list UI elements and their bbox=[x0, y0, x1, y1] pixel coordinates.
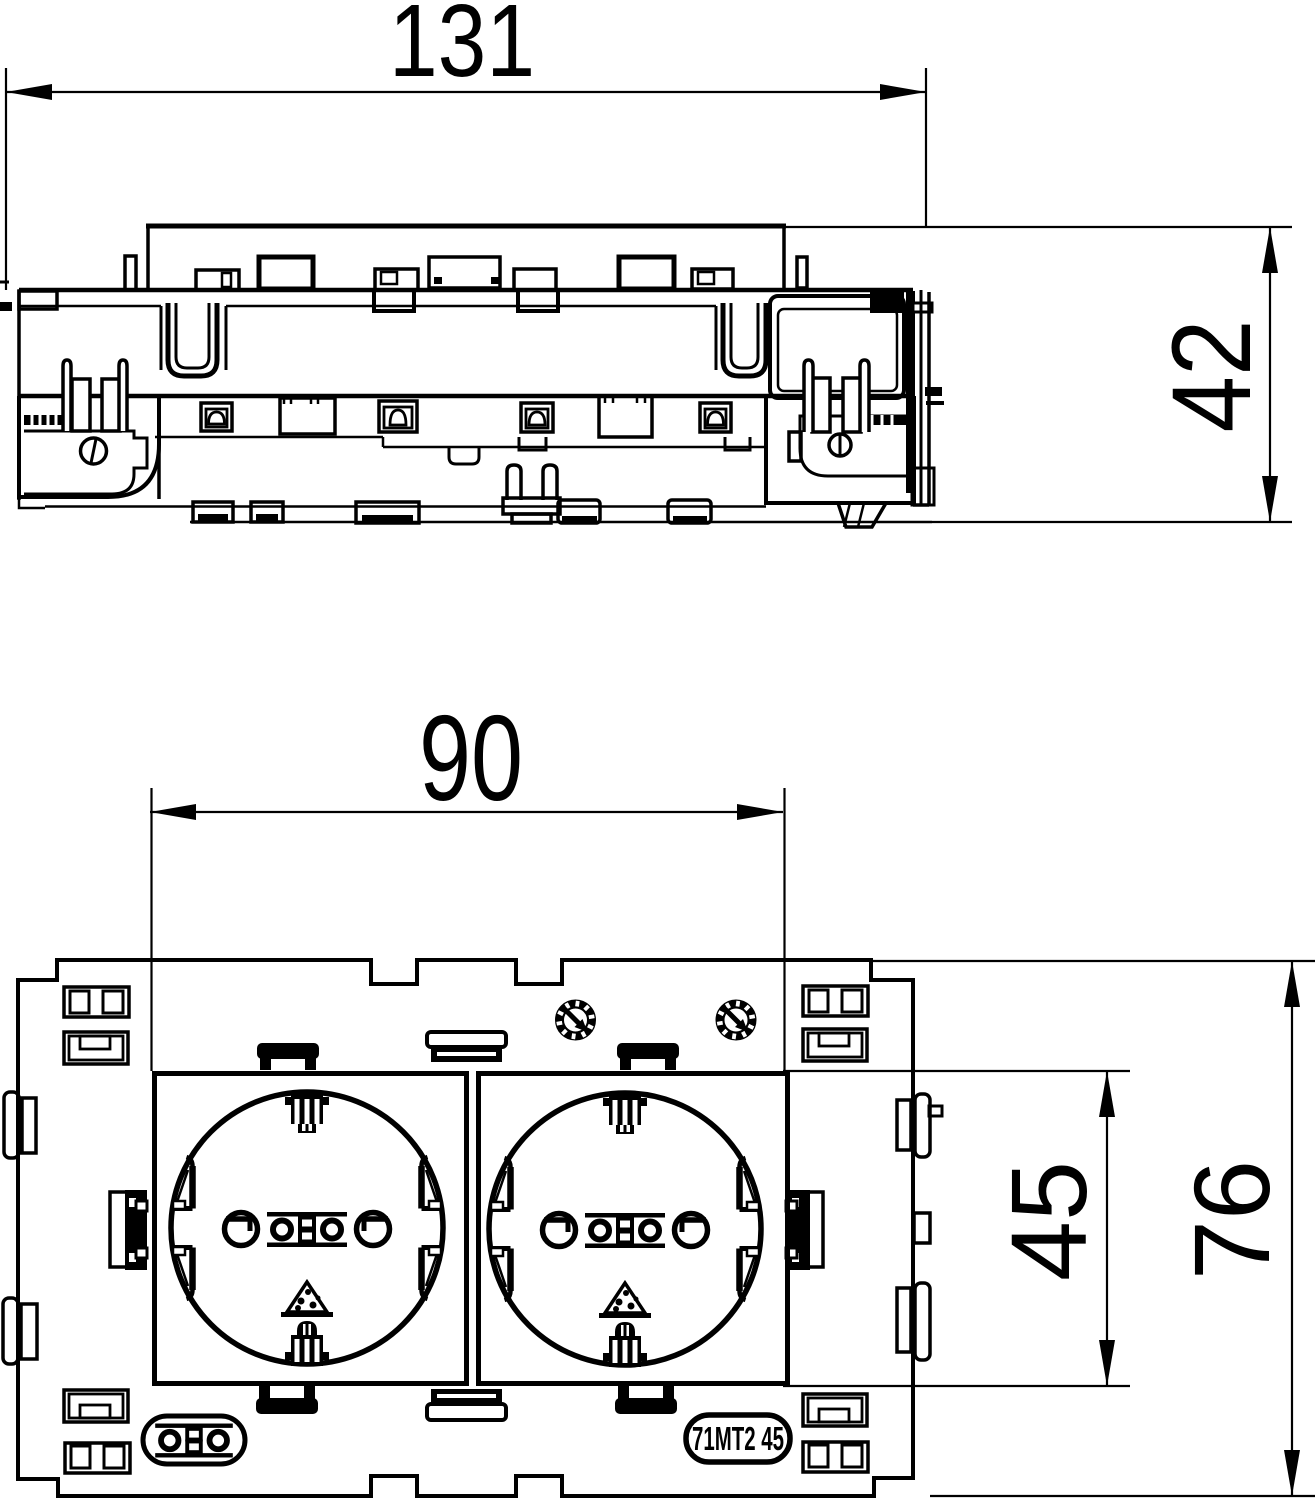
svg-text:71MT2 45: 71MT2 45 bbox=[692, 1420, 784, 1457]
svg-text:90: 90 bbox=[419, 690, 523, 826]
svg-text:131: 131 bbox=[389, 0, 535, 98]
svg-text:42: 42 bbox=[1149, 320, 1274, 433]
svg-text:76: 76 bbox=[1171, 1160, 1292, 1280]
svg-text:45: 45 bbox=[988, 1161, 1109, 1281]
